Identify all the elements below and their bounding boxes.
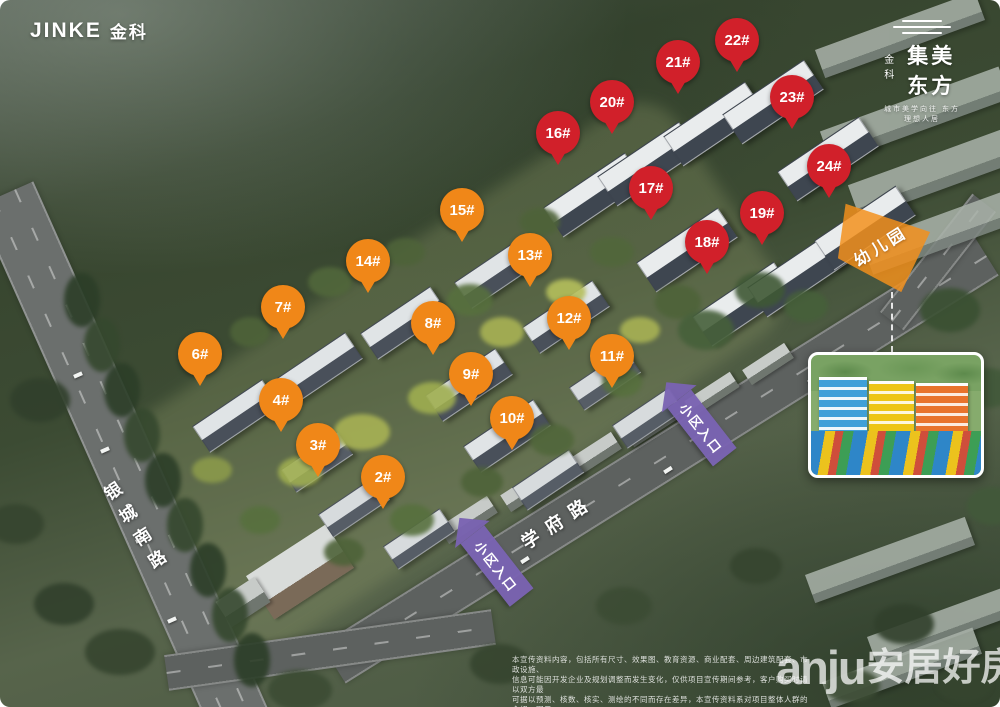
pin-label: 15# — [449, 202, 474, 219]
pin-label: 23# — [779, 89, 804, 106]
pin-label: 8# — [425, 315, 442, 332]
building-pin-16: 16# — [536, 111, 580, 155]
anju-watermark: anju 安居好房 — [776, 644, 1000, 691]
roof-emblem-icon — [893, 20, 951, 35]
building-pin-6: 6# — [178, 332, 222, 376]
disclaimer-line: 本宣传资料内容，包括所有尺寸、效果图、教育资源、商业配套、周边建筑配套、市政设施… — [512, 655, 812, 675]
building-pin-18: 18# — [685, 220, 729, 264]
building-pin-20: 20# — [590, 80, 634, 124]
building-pin-21: 21# — [656, 40, 700, 84]
pin-label: 2# — [375, 469, 392, 486]
pin-label: 17# — [638, 180, 663, 197]
pin-label: 11# — [600, 348, 624, 365]
pin-label: 14# — [355, 253, 380, 270]
building-pin-8: 8# — [411, 301, 455, 345]
logo-project-name: 集美东方 — [902, 40, 961, 100]
pin-label: 22# — [724, 32, 749, 49]
building-pin-22: 22# — [715, 18, 759, 62]
aerial-site-plan: 幼儿园 学府路 银城南路 小区入口 小区入口 2#3#4#6#7#8#9#10#… — [0, 0, 1000, 707]
pin-label: 10# — [499, 410, 524, 427]
pin-label: 12# — [556, 310, 581, 327]
pin-label: 21# — [665, 54, 690, 71]
building-pin-12: 12# — [547, 296, 591, 340]
building-pin-23: 23# — [770, 75, 814, 119]
jimei-dongfang-logo: 金科 集美东方 城市美学向往 东方理想人居 — [883, 16, 961, 124]
jinke-logo-cn: 金科 — [110, 18, 148, 43]
pin-label: 6# — [192, 346, 209, 363]
pin-label: 9# — [463, 366, 480, 383]
building-pin-4: 4# — [259, 378, 303, 422]
pin-label: 4# — [273, 392, 290, 409]
building-pin-15: 15# — [440, 188, 484, 232]
pin-label: 13# — [517, 247, 542, 264]
pin-label: 20# — [599, 94, 624, 111]
building-pin-19: 19# — [740, 191, 784, 235]
building-pin-11: 11# — [590, 334, 634, 378]
building-pin-7: 7# — [261, 285, 305, 329]
pin-label: 7# — [275, 299, 292, 316]
building-pin-3: 3# — [296, 423, 340, 467]
building-pin-17: 17# — [629, 166, 673, 210]
disclaimer-line: 信息可能因开发企业及规划调整而发生变化，仅供项目宣传期间参考，客户购买时请以双方… — [512, 675, 812, 695]
jinke-logo: JINKE 金科 — [30, 18, 148, 43]
pin-label: 18# — [694, 234, 719, 251]
building-pin-24: 24# — [807, 144, 851, 188]
pins-layer: 2#3#4#6#7#8#9#10#11#12#13#14#15#16#17#18… — [0, 0, 1000, 707]
pin-label: 19# — [749, 205, 774, 222]
building-pin-14: 14# — [346, 239, 390, 283]
pin-label: 24# — [816, 158, 841, 175]
watermark-latin: anju — [776, 644, 865, 691]
disclaimer-line: 可据以预测、核数、核实、测绘的不同而存在差异，本宣传资料系对项目整体人群的介绍、… — [512, 695, 812, 707]
disclaimer-text: 本宣传资料内容，包括所有尺寸、效果图、教育资源、商业配套、周边建筑配套、市政设施… — [512, 655, 812, 707]
building-pin-2: 2# — [361, 455, 405, 499]
building-pin-9: 9# — [449, 352, 493, 396]
logo-tagline: 城市美学向往 东方理想人居 — [883, 104, 961, 124]
jinke-logo-en: JINKE — [30, 19, 102, 43]
logo-brand-small: 金科 — [883, 51, 897, 81]
watermark-cn: 安居好房 — [867, 649, 1000, 687]
building-pin-13: 13# — [508, 233, 552, 277]
pin-label: 16# — [545, 125, 570, 142]
pin-label: 3# — [310, 437, 327, 454]
building-pin-10: 10# — [490, 396, 534, 440]
